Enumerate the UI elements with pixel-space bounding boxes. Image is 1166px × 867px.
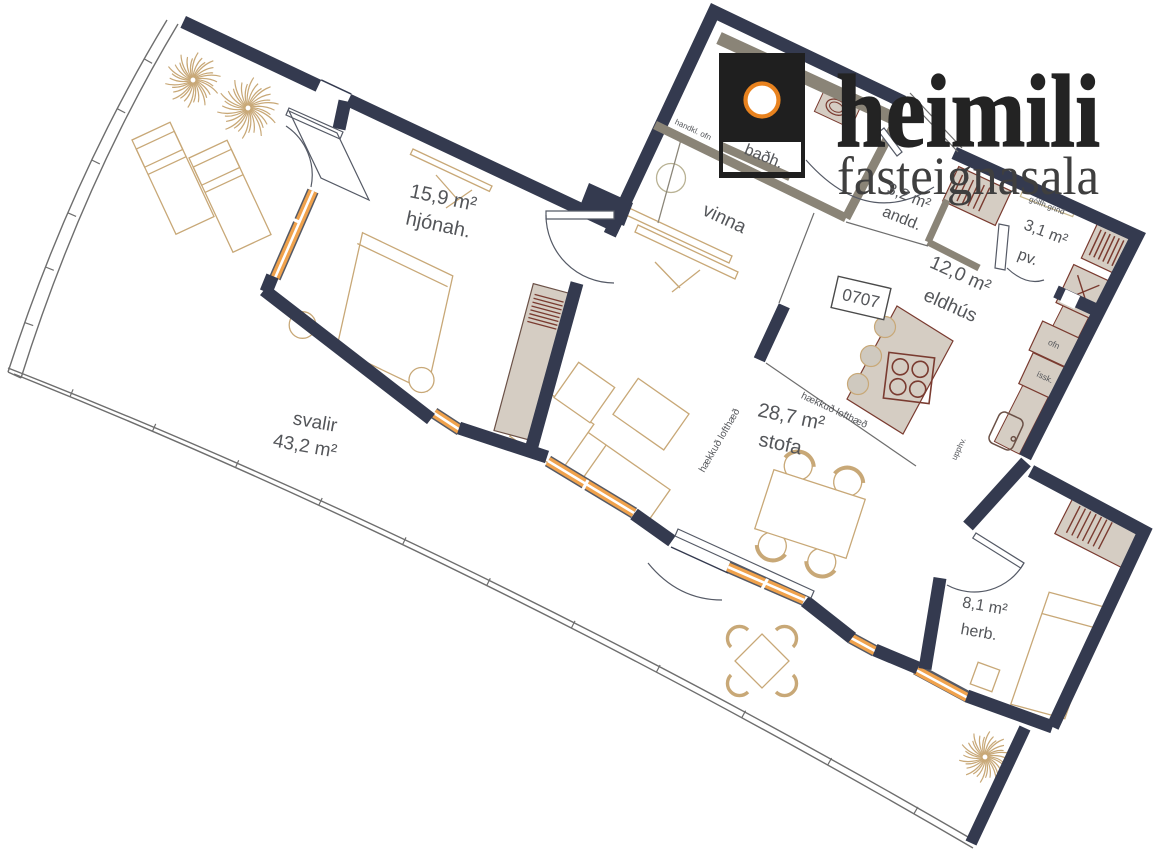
svg-text:fasteignasala: fasteignasala xyxy=(837,146,1099,206)
